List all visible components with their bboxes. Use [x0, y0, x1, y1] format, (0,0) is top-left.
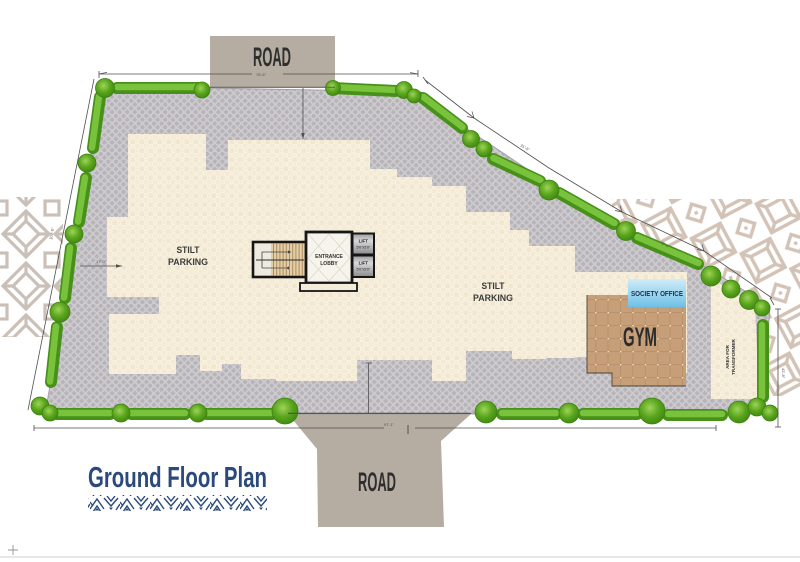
- svg-text:42'-8": 42'-8": [781, 368, 786, 379]
- svg-text:TRANSFORMER: TRANSFORMER: [731, 338, 736, 374]
- svg-text:LOBBY: LOBBY: [320, 261, 338, 267]
- svg-text:PARKING: PARKING: [473, 293, 513, 303]
- svg-text:ENTRANCE: ENTRANCE: [315, 254, 343, 260]
- svg-text:AREA FOR: AREA FOR: [725, 344, 730, 369]
- svg-text:78'-6": 78'-6": [256, 72, 267, 77]
- svg-text:ROAD: ROAD: [358, 467, 396, 497]
- svg-text:5'0"x5'0": 5'0"x5'0": [356, 246, 370, 250]
- svg-text:STILT: STILT: [177, 245, 200, 255]
- svg-text:Ground Floor Plan: Ground Floor Plan: [88, 462, 267, 494]
- svg-text:STILT: STILT: [482, 281, 505, 291]
- svg-text:LIFT: LIFT: [359, 239, 369, 244]
- svg-text:17'-0": 17'-0": [96, 259, 107, 264]
- svg-text:ROAD: ROAD: [253, 42, 291, 72]
- svg-text:LIFT: LIFT: [359, 261, 369, 266]
- svg-text:5'0"x5'0": 5'0"x5'0": [356, 268, 370, 272]
- svg-text:PARKING: PARKING: [168, 257, 208, 267]
- svg-text:SOCIETY OFFICE: SOCIETY OFFICE: [631, 291, 683, 298]
- svg-text:97'-1": 97'-1": [384, 422, 395, 427]
- svg-text:GYM: GYM: [623, 322, 657, 352]
